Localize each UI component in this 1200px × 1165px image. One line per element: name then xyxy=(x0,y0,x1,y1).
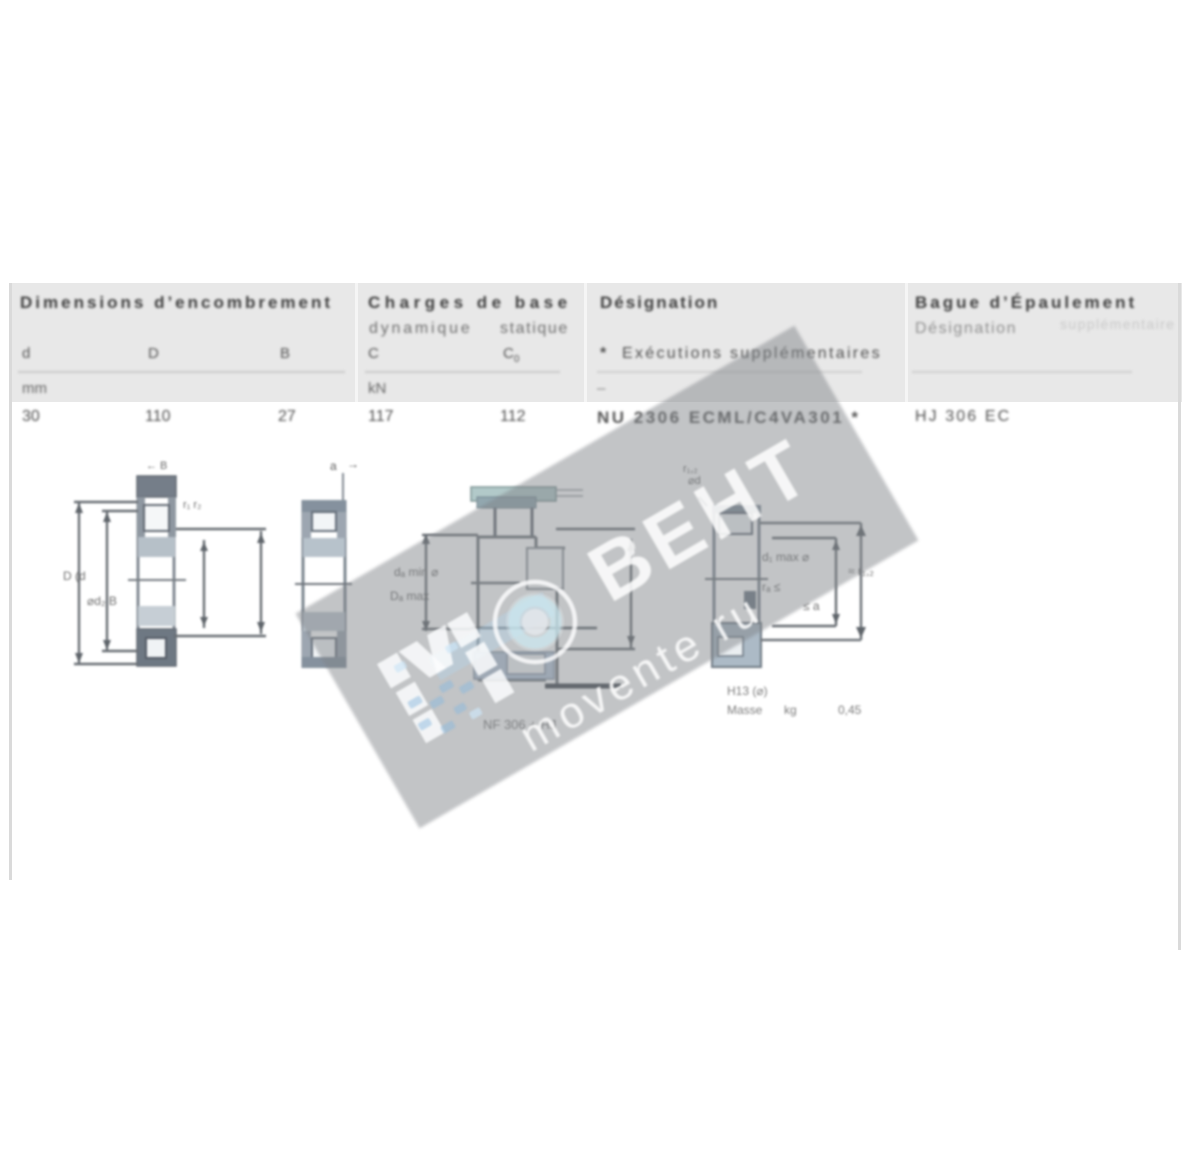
svg-text:Masse: Masse xyxy=(727,703,763,717)
svg-text:⌀d₂ B: ⌀d₂ B xyxy=(87,594,117,608)
svg-text:D (d: D (d xyxy=(63,569,86,583)
svg-text:r₁ r₂: r₁ r₂ xyxy=(183,499,201,511)
svg-text:0,45: 0,45 xyxy=(838,703,862,717)
svg-text:kg: kg xyxy=(784,703,797,717)
svg-text:H13 (⌀): H13 (⌀) xyxy=(727,684,768,698)
svg-text:a: a xyxy=(330,459,337,473)
svg-text:→: → xyxy=(347,457,359,471)
svg-text:← B: ← B xyxy=(146,460,167,472)
